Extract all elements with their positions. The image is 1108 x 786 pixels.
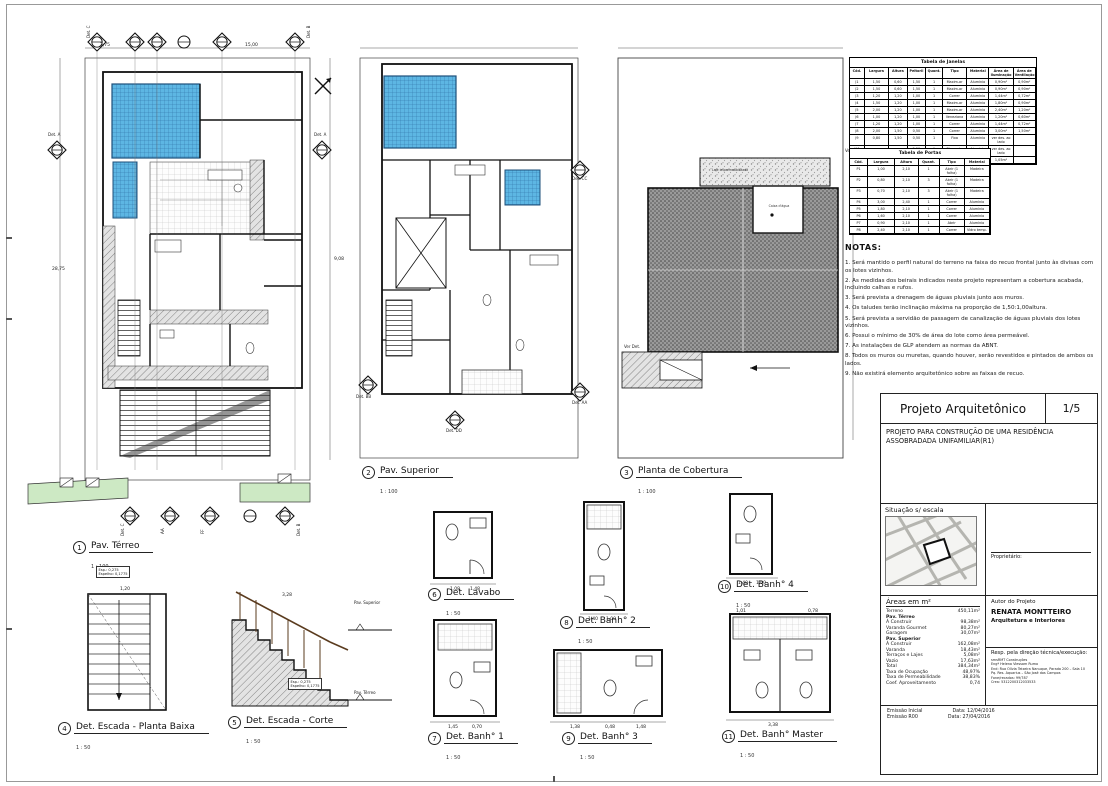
plan-title: Det. Banh° 3: [578, 732, 652, 744]
situacao-map: [885, 516, 977, 586]
tabela-portas-title: Tabela de Portas: [850, 149, 990, 159]
list-item: 7. As instalações de GLP atendem as norm…: [845, 343, 1095, 351]
table-cell: P6: [850, 213, 868, 220]
plan-title: Det. Banh° Master: [738, 730, 837, 742]
level-label-terreo: Pav. Térreo: [354, 690, 376, 695]
table-cell: Alumínio: [967, 93, 989, 100]
table-cell: 0,72m²: [1014, 93, 1036, 100]
table-cell: Largura: [865, 68, 889, 79]
plan-scale: 1 : 50: [444, 755, 460, 761]
plan-title: Pav. Térreo: [89, 541, 153, 553]
table-cell: [1014, 146, 1036, 157]
plan-number: 1: [73, 541, 86, 554]
plan-scale: 1 : 50: [444, 611, 460, 617]
table-cell: Área de Iluminação: [989, 68, 1013, 79]
list-item: Crea: 5312200312033533: [991, 680, 1092, 684]
table-cell: Material: [967, 68, 989, 79]
plan-number: 7: [428, 732, 441, 745]
table-cell: Alumínio: [967, 79, 989, 86]
table-cell: 1,00: [865, 114, 889, 121]
table-cell: 2,00: [865, 128, 889, 135]
table-row: P82,402,101CorrerVidro temp.: [850, 227, 990, 234]
table-cell: 1,20m²: [1014, 107, 1036, 114]
table-row: P30,702,103Abrir (1 folha)Madeira: [850, 188, 990, 199]
plan-number: 4: [58, 722, 71, 735]
table-cell: 1,44m²: [989, 93, 1013, 100]
table-cell: 1,50: [865, 79, 889, 86]
table-cell: 0,60m²: [1014, 114, 1036, 121]
plan-number: 5: [228, 716, 241, 729]
table-cell: 0,50: [908, 128, 927, 135]
table-cell: Alumínio: [967, 121, 989, 128]
table-cell: 3: [919, 188, 940, 199]
table-cell: P1: [850, 166, 868, 177]
table-row: P20,802,103Abrir (1 folha)Madeira: [850, 177, 990, 188]
table-cell: 0,60: [889, 79, 908, 86]
table-cell: 1,00: [908, 121, 927, 128]
notas-list: 1. Será mantido o perfil natural do terr…: [845, 260, 1095, 379]
table-row: P51,802,101CorrerAlumínio: [850, 206, 990, 213]
caixa-dagua-label: Caixa d'água: [758, 204, 800, 208]
table-cell: 1,44m²: [989, 121, 1013, 128]
dim-label: 1,20: [120, 586, 130, 592]
plan-label-banho2: 8 Det. Banh° 2 1 : 50: [560, 616, 650, 647]
table-cell: 1: [919, 213, 940, 220]
table-cell: Alumínio: [967, 86, 989, 93]
marker-det-a: Det. A: [48, 132, 60, 137]
det-escada-planta: [88, 594, 166, 710]
table-cell: Vidro temp.: [965, 227, 990, 234]
plan-title: Det. Escada - Planta Baixa: [74, 722, 209, 734]
dim-label: 0,70: [472, 724, 482, 730]
dim-label: 3,38: [768, 722, 778, 728]
table-cell: 0,70: [868, 188, 895, 199]
table-cell: ver des. ao lado: [989, 146, 1013, 157]
plan-label-lavabo: 6 Det. Lavabo 1 : 50: [428, 588, 514, 619]
autor-label: Autor do Projeto: [991, 599, 1092, 605]
table-cell: J5: [850, 107, 865, 114]
table-cell: Madeira: [965, 166, 990, 177]
plan-title: Det. Lavabo: [444, 588, 514, 600]
plan-pav-superior: [359, 48, 589, 458]
tabela-portas: Tabela de Portas Cód.LarguraAlturaQuant.…: [849, 148, 991, 235]
project-description: PROJETO PARA CONSTRUÇÃO DE UMA RESIDÊNCI…: [881, 424, 1097, 504]
table-cell: Altura: [889, 68, 908, 79]
table-cell: 0,90m²: [1014, 100, 1036, 107]
plan-cobertura: [618, 48, 853, 458]
table-cell: 2,10: [895, 220, 919, 227]
table-cell: 1: [926, 128, 943, 135]
table-cell: J4: [850, 100, 865, 107]
areas-list: Terreno450,11m²Pav. TérreoÁ Construir98,…: [886, 609, 980, 686]
notas-block: NOTAS: 1. Será mantido o perfil natural …: [845, 243, 1095, 381]
det-banho1: [430, 620, 500, 722]
list-item: 3. Será prevista a drenagem de águas plu…: [845, 295, 1095, 303]
plan-label-escada-baixa: 4 Det. Escada - Planta Baixa 1 : 50: [58, 722, 209, 753]
table-row: P11,002,101Abrir (1 folha)Madeira: [850, 166, 990, 177]
table-row: J21,500,601,501Maxim-arAlumínio0,90m²0,9…: [850, 86, 1036, 93]
table-cell: J6: [850, 114, 865, 121]
table-cell: 1: [919, 220, 940, 227]
table-row: P61,602,101CorrerAlumínio: [850, 213, 990, 220]
list-item: 9. Não existirá elemento arquitetônico s…: [845, 371, 1095, 379]
level-label-superior: Pav. Superior: [354, 600, 380, 605]
pair-row: Emissão R00Data: 27/04/2016: [887, 715, 1091, 721]
marker-det-aa: Det. AA: [572, 400, 587, 405]
table-cell: 1,00: [908, 100, 927, 107]
table-cell: 0,90m²: [1014, 86, 1036, 93]
plan-label-banho1: 7 Det. Banh° 1 1 : 50: [428, 732, 518, 763]
situacao-cell: Situação s/ escala: [881, 504, 986, 595]
table-cell: 2,10: [895, 206, 919, 213]
marker-det-bb: Det. BB: [356, 394, 371, 399]
plan-pav-terreo: [28, 33, 331, 525]
table-cell: Abrir (1 folha): [940, 177, 965, 188]
table-cell: J9: [850, 135, 865, 146]
dim-label: 0,48: [605, 724, 615, 730]
table-cell: Maxim-ar: [943, 100, 967, 107]
table-cell: Maxim-ar: [943, 79, 967, 86]
table-cell: Cód.: [850, 159, 868, 166]
table-cell: 0,90m²: [989, 86, 1013, 93]
marker-det-cc: Det. CC: [572, 176, 587, 181]
dim-label: 1,48: [636, 724, 646, 730]
table-cell: P8: [850, 227, 868, 234]
table-cell: 2,40m²: [989, 107, 1013, 114]
pair-row: Coef. Aproveitamento0,74: [886, 681, 980, 687]
table-cell: 1: [926, 100, 943, 107]
table-cell: Correr: [940, 213, 965, 220]
resp-lines: smsRMT ConstruçõesEngª Helena Viessam Ru…: [991, 658, 1092, 684]
plan-number: 10: [718, 580, 731, 593]
table-row: Cód.LarguraAlturaPeitorilQuant.TipoMater…: [850, 68, 1036, 79]
table-cell: 0,80: [865, 135, 889, 146]
dim-label: 1,45: [448, 724, 458, 730]
table-cell: 1: [926, 93, 943, 100]
plan-number: 3: [620, 466, 633, 479]
plan-number: 11: [722, 730, 735, 743]
areas-title: Áreas em m²: [886, 598, 980, 607]
plan-label-pav-superior: 2 Pav. Superior 1 : 100: [362, 466, 453, 497]
table-cell: 1,50: [889, 128, 908, 135]
marker-det-c: Det. C: [120, 524, 125, 536]
table-cell: Alumínio: [965, 199, 990, 206]
table-row: J31,201,201,001CorrerAlumínio1,44m²0,72m…: [850, 93, 1036, 100]
dim-label: 1,38: [570, 724, 580, 730]
title-block-header: Projeto Arquitetônico 1/5: [881, 394, 1097, 424]
plan-label-banho-master: 11 Det. Banh° Master 1 : 50: [722, 730, 837, 761]
notas-title: NOTAS:: [845, 243, 1095, 252]
plan-scale: 1 : 50: [734, 603, 750, 609]
table-cell: Alumínio: [967, 135, 989, 146]
table-row: P70,902,101AbrirAlumínio: [850, 220, 990, 227]
table-cell: 2,10: [895, 227, 919, 234]
table-cell: P7: [850, 220, 868, 227]
dim-label: 15,00: [245, 42, 258, 48]
table-cell: P3: [850, 188, 868, 199]
table-cell: 1: [919, 199, 940, 206]
table-cell: 1: [926, 107, 943, 114]
marker-ver-det: Ver Det.: [624, 344, 640, 349]
plan-title: Det. Escada - Corte: [244, 716, 347, 728]
table-cell: 0,90m²: [1014, 79, 1036, 86]
drawing-sheet: 3,75 15,00 28,75 9,08 1,08 1,48 1,45 0,7…: [0, 0, 1108, 786]
table-cell: Correr: [940, 199, 965, 206]
plan-number: 9: [562, 732, 575, 745]
table-cell: Madeira: [965, 177, 990, 188]
autor-subtitle: Arquitetura e Interiores: [991, 618, 1092, 624]
table-cell: 2,10: [895, 188, 919, 199]
marker-det-a: Det. A: [314, 132, 326, 137]
tabela-portas-body: Cód.LarguraAlturaQuant.TipoMaterialP11,0…: [850, 159, 990, 234]
marker-det-c: Det. C: [86, 26, 91, 38]
laje-label: Laje impermeabilizada: [712, 168, 748, 172]
det-banho3: [550, 650, 666, 722]
plan-title: Det. Banh° 1: [444, 732, 518, 744]
esp-note: Esp.: 0,275Espelho: 0,1775: [288, 678, 322, 690]
plan-title: Det. Banh° 4: [734, 580, 808, 592]
table-cell: J2: [850, 86, 865, 93]
emissao-cell: Emissão InicialData: 12/04/2016Emissão R…: [881, 706, 1097, 724]
table-cell: 3,00m²: [989, 128, 1013, 135]
proprietario-label: Proprietário:: [991, 552, 1091, 560]
sheet-number: 1/5: [1045, 394, 1097, 423]
autor-name: RENATA MONTTEIRO: [991, 608, 1092, 616]
plan-number: 8: [560, 616, 573, 629]
det-banho4: [726, 494, 778, 578]
emissao-list: Emissão InicialData: 12/04/2016Emissão R…: [887, 709, 1091, 721]
list-item: 4. Os taludes terão inclinação máxima na…: [845, 305, 1095, 313]
espelho-text: Espelho: 0,1775: [99, 572, 128, 576]
table-cell: 1: [926, 135, 943, 146]
table-cell: 1,20: [889, 100, 908, 107]
det-lavabo: [430, 512, 496, 584]
table-cell: Tipo: [943, 68, 967, 79]
marker-det-b: Det. B: [296, 524, 301, 536]
resp-cell: Resp. pela direção técnica/execução: sms…: [986, 648, 1097, 686]
plan-scale: 1 : 100: [636, 489, 656, 495]
table-cell: 1,60: [868, 213, 895, 220]
table-cell: Peitoril: [908, 68, 927, 79]
table-cell: Tipo: [940, 159, 965, 166]
esp-text: Esp.: 0,275: [99, 568, 119, 572]
table-cell: 1,20: [865, 93, 889, 100]
proprietario-cell: Proprietário:: [986, 504, 1097, 595]
plan-title: Planta de Cobertura: [636, 466, 742, 478]
det-banho2: [580, 502, 628, 614]
plan-scale: 1 : 50: [738, 753, 754, 759]
table-row: J82,001,500,501CorrerAlumínio3,00m²1,50m…: [850, 128, 1036, 135]
table-cell: 3,00: [868, 199, 895, 206]
table-cell: Maxim-ar: [943, 107, 967, 114]
table-cell: 1,50: [865, 86, 889, 93]
plan-number: 6: [428, 588, 441, 601]
table-cell: Cód.: [850, 68, 865, 79]
table-row: J61,001,201,001VenezianaAlumínio1,20m²0,…: [850, 114, 1036, 121]
table-cell: Abrir: [940, 220, 965, 227]
table-cell: P4: [850, 199, 868, 206]
esp-note: Esp.: 0,275Espelho: 0,1775: [96, 566, 130, 578]
sheet-title: Projeto Arquitetônico: [881, 394, 1045, 423]
plan-number: 2: [362, 466, 375, 479]
table-cell: 1,00: [908, 114, 927, 121]
table-cell: J3: [850, 93, 865, 100]
table-cell: Altura: [895, 159, 919, 166]
pair-value: 0,74: [970, 681, 980, 687]
table-cell: Correr: [940, 227, 965, 234]
table-cell: 1,20: [889, 93, 908, 100]
pair-value: 450,11m²: [958, 609, 980, 615]
table-cell: 0,90m²: [989, 79, 1013, 86]
table-cell: 2,10: [895, 166, 919, 177]
table-cell: 0,60: [889, 86, 908, 93]
table-cell: [1014, 135, 1036, 146]
table-row: J52,001,201,001Maxim-arAlumínio2,40m²1,2…: [850, 107, 1036, 114]
table-cell: 1,50: [865, 100, 889, 107]
table-cell: Alumínio: [965, 206, 990, 213]
table-cell: Alumínio: [967, 107, 989, 114]
table-cell: 1,80m²: [989, 100, 1013, 107]
plan-label-banho3: 9 Det. Banh° 3 1 : 50: [562, 732, 652, 763]
table-cell: 1,80: [868, 206, 895, 213]
table-cell: Alumínio: [965, 220, 990, 227]
table-cell: Material: [965, 159, 990, 166]
tabela-janelas-title: Tabela de Janelas: [850, 58, 1036, 68]
plan-scale: 1 : 50: [244, 739, 260, 745]
table-row: P43,002,401CorrerAlumínio: [850, 199, 990, 206]
table-cell: 1,50: [889, 135, 908, 146]
table-cell: Quant.: [926, 68, 943, 79]
table-cell: Largura: [868, 159, 895, 166]
table-cell: 0,80: [868, 177, 895, 188]
table-cell: 0,50: [908, 135, 927, 146]
table-row: J41,501,201,001Maxim-arAlumínio1,80m²0,9…: [850, 100, 1036, 107]
list-item: 1. Será mantido o perfil natural do terr…: [845, 260, 1095, 275]
table-cell: 0,90: [868, 220, 895, 227]
table-cell: 1,50: [908, 79, 927, 86]
plan-scale: 1 : 50: [576, 639, 592, 645]
situacao-label: Situação s/ escala: [885, 506, 981, 514]
table-cell: Correr: [943, 128, 967, 135]
resp-label: Resp. pela direção técnica/execução:: [991, 650, 1092, 656]
table-cell: 1: [919, 206, 940, 213]
table-cell: Correr: [943, 93, 967, 100]
det-banho-master: [726, 614, 834, 720]
list-item: 8. Todos os muros ou muretas, quando hou…: [845, 353, 1095, 368]
table-cell: 2,10: [895, 213, 919, 220]
table-cell: 2,10: [895, 177, 919, 188]
table-cell: 2,40: [895, 199, 919, 206]
table-cell: Abrir (1 folha): [940, 188, 965, 199]
title-block: Projeto Arquitetônico 1/5 PROJETO PARA C…: [880, 393, 1098, 775]
table-cell: 1: [926, 121, 943, 128]
table-row: J90,801,500,501FixaAlumíniover des. ao l…: [850, 135, 1036, 146]
plan-label-escada-corte: 5 Det. Escada - Corte 1 : 50: [228, 716, 347, 747]
table-cell: 1: [926, 86, 943, 93]
plan-scale: 1 : 50: [578, 755, 594, 761]
north-arrow-icon: [315, 78, 331, 94]
table-cell: Correr: [943, 121, 967, 128]
marker-ff: FF: [200, 529, 205, 534]
table-cell: 1: [919, 166, 940, 177]
table-cell: 1,00: [868, 166, 895, 177]
marker-aa: AA: [160, 528, 165, 534]
plan-scale: 1 : 50: [74, 745, 90, 751]
table-cell: 1: [926, 79, 943, 86]
table-cell: 1: [926, 114, 943, 121]
list-item: 5. Será prevista a servidão de passagem …: [845, 316, 1095, 331]
plan-title: Pav. Superior: [378, 466, 453, 478]
table-cell: 1,20: [889, 121, 908, 128]
table-cell: Correr: [940, 206, 965, 213]
table-row: J11,500,601,501Maxim-arAlumínio0,90m²0,9…: [850, 79, 1036, 86]
table-cell: Fixa: [943, 135, 967, 146]
table-cell: 1,20: [889, 107, 908, 114]
dim-label: 9,08: [334, 256, 344, 262]
table-cell: 1,50m²: [1014, 128, 1036, 135]
marker-det-dd: Det. DD: [446, 428, 462, 433]
table-cell: Veneziana: [943, 114, 967, 121]
plan-title: Det. Banh° 2: [576, 616, 650, 628]
table-cell: Alumínio: [967, 100, 989, 107]
table-cell: ver des. ao lado: [989, 135, 1013, 146]
table-cell: 1: [919, 227, 940, 234]
table-cell: Quant.: [919, 159, 940, 166]
list-item: 6. Possui o mínimo de 30% de área do lot…: [845, 333, 1095, 341]
table-cell: Alumínio: [967, 128, 989, 135]
table-cell: Alumínio: [965, 213, 990, 220]
table-cell: P5: [850, 206, 868, 213]
marker-det-b: Det. B: [306, 26, 311, 38]
table-cell: 2,00: [865, 107, 889, 114]
table-cell: P2: [850, 177, 868, 188]
plan-label-banho4: 10 Det. Banh° 4 1 : 50: [718, 580, 808, 611]
table-row: Cód.LarguraAlturaQuant.TipoMaterial: [850, 159, 990, 166]
table-cell: J1: [850, 79, 865, 86]
table-cell: 1,50: [908, 86, 927, 93]
areas-cell: Áreas em m² Terreno450,11m²Pav. TérreoÁ …: [881, 596, 986, 705]
table-cell: 3: [919, 177, 940, 188]
table-row: J71,201,201,001CorrerAlumínio1,44m²0,72m…: [850, 121, 1036, 128]
dim-label: 28,75: [52, 266, 65, 272]
pair-value: 30,07m²: [961, 631, 980, 637]
table-cell: 1,05m²: [989, 157, 1013, 164]
table-cell: [1014, 157, 1036, 164]
table-cell: 1,20m²: [989, 114, 1013, 121]
autor-cell: Autor do Projeto RENATA MONTTEIRO Arquit…: [986, 596, 1097, 648]
dim-label: 3,28: [282, 592, 292, 598]
plan-label-cobertura: 3 Planta de Cobertura 1 : 100: [620, 466, 742, 497]
list-item: 2. As medidas dos beirais indicados nest…: [845, 278, 1095, 293]
table-cell: 1,20: [865, 121, 889, 128]
table-cell: J7: [850, 121, 865, 128]
espelho-text: Espelho: 0,1775: [291, 684, 320, 688]
plan-scale: 1 : 100: [378, 489, 398, 495]
table-cell: 1,00: [908, 107, 927, 114]
pair-label: Emissão R00: [887, 715, 918, 721]
table-cell: J8: [850, 128, 865, 135]
table-cell: 1,20: [889, 114, 908, 121]
table-cell: Abrir (1 folha): [940, 166, 965, 177]
table-cell: Área de Ventilação: [1014, 68, 1036, 79]
dim-label: 0,78: [808, 608, 818, 614]
table-cell: Madeira: [965, 188, 990, 199]
pair-value: Data: 27/04/2016: [948, 715, 990, 721]
pair-label: Coef. Aproveitamento: [886, 681, 936, 687]
table-cell: Maxim-ar: [943, 86, 967, 93]
dim-label: 3,75: [100, 42, 110, 48]
table-cell: Alumínio: [967, 114, 989, 121]
